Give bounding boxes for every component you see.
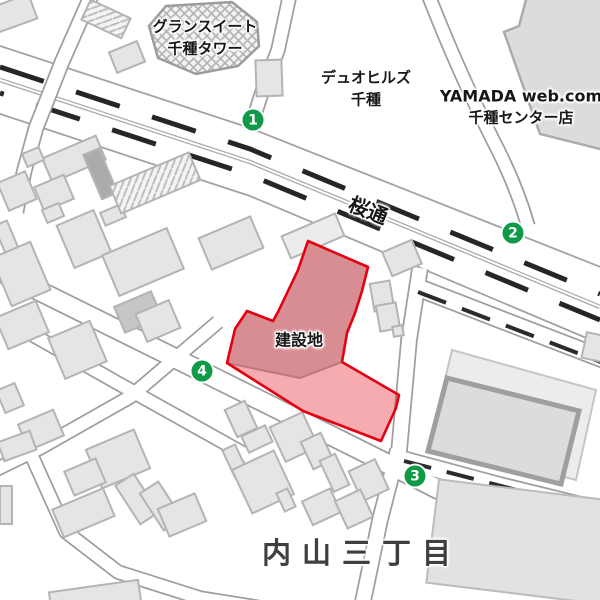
label-yamada-line2: 千種センター店 (440, 108, 600, 130)
route-marker-2[interactable]: 2 (503, 223, 524, 244)
label-duo-hills: デュオヒルズ 千種 (321, 67, 411, 111)
label-yamada-line1: YAMADA web.com (440, 85, 600, 108)
route-marker-1[interactable]: 1 (243, 110, 264, 131)
label-yamada-store: YAMADA web.com 千種センター店 (440, 85, 600, 130)
label-duo-hills-line1: デュオヒルズ (321, 67, 411, 89)
label-grand-suite-tower: グランスイート 千種タワー (153, 16, 258, 60)
label-grand-suite-line2: 千種タワー (153, 38, 258, 60)
label-construction-site: 建設地 (275, 328, 323, 351)
map-canvas: グランスイート 千種タワー デュオヒルズ 千種 YAMADA web.com 千… (0, 0, 600, 600)
label-grand-suite-line1: グランスイート (153, 16, 258, 38)
label-duo-hills-line2: 千種 (321, 89, 411, 111)
route-marker-4[interactable]: 4 (192, 361, 213, 382)
label-district-uchiyama: 内山三丁目 (262, 532, 462, 574)
route-marker-3[interactable]: 3 (405, 466, 426, 487)
